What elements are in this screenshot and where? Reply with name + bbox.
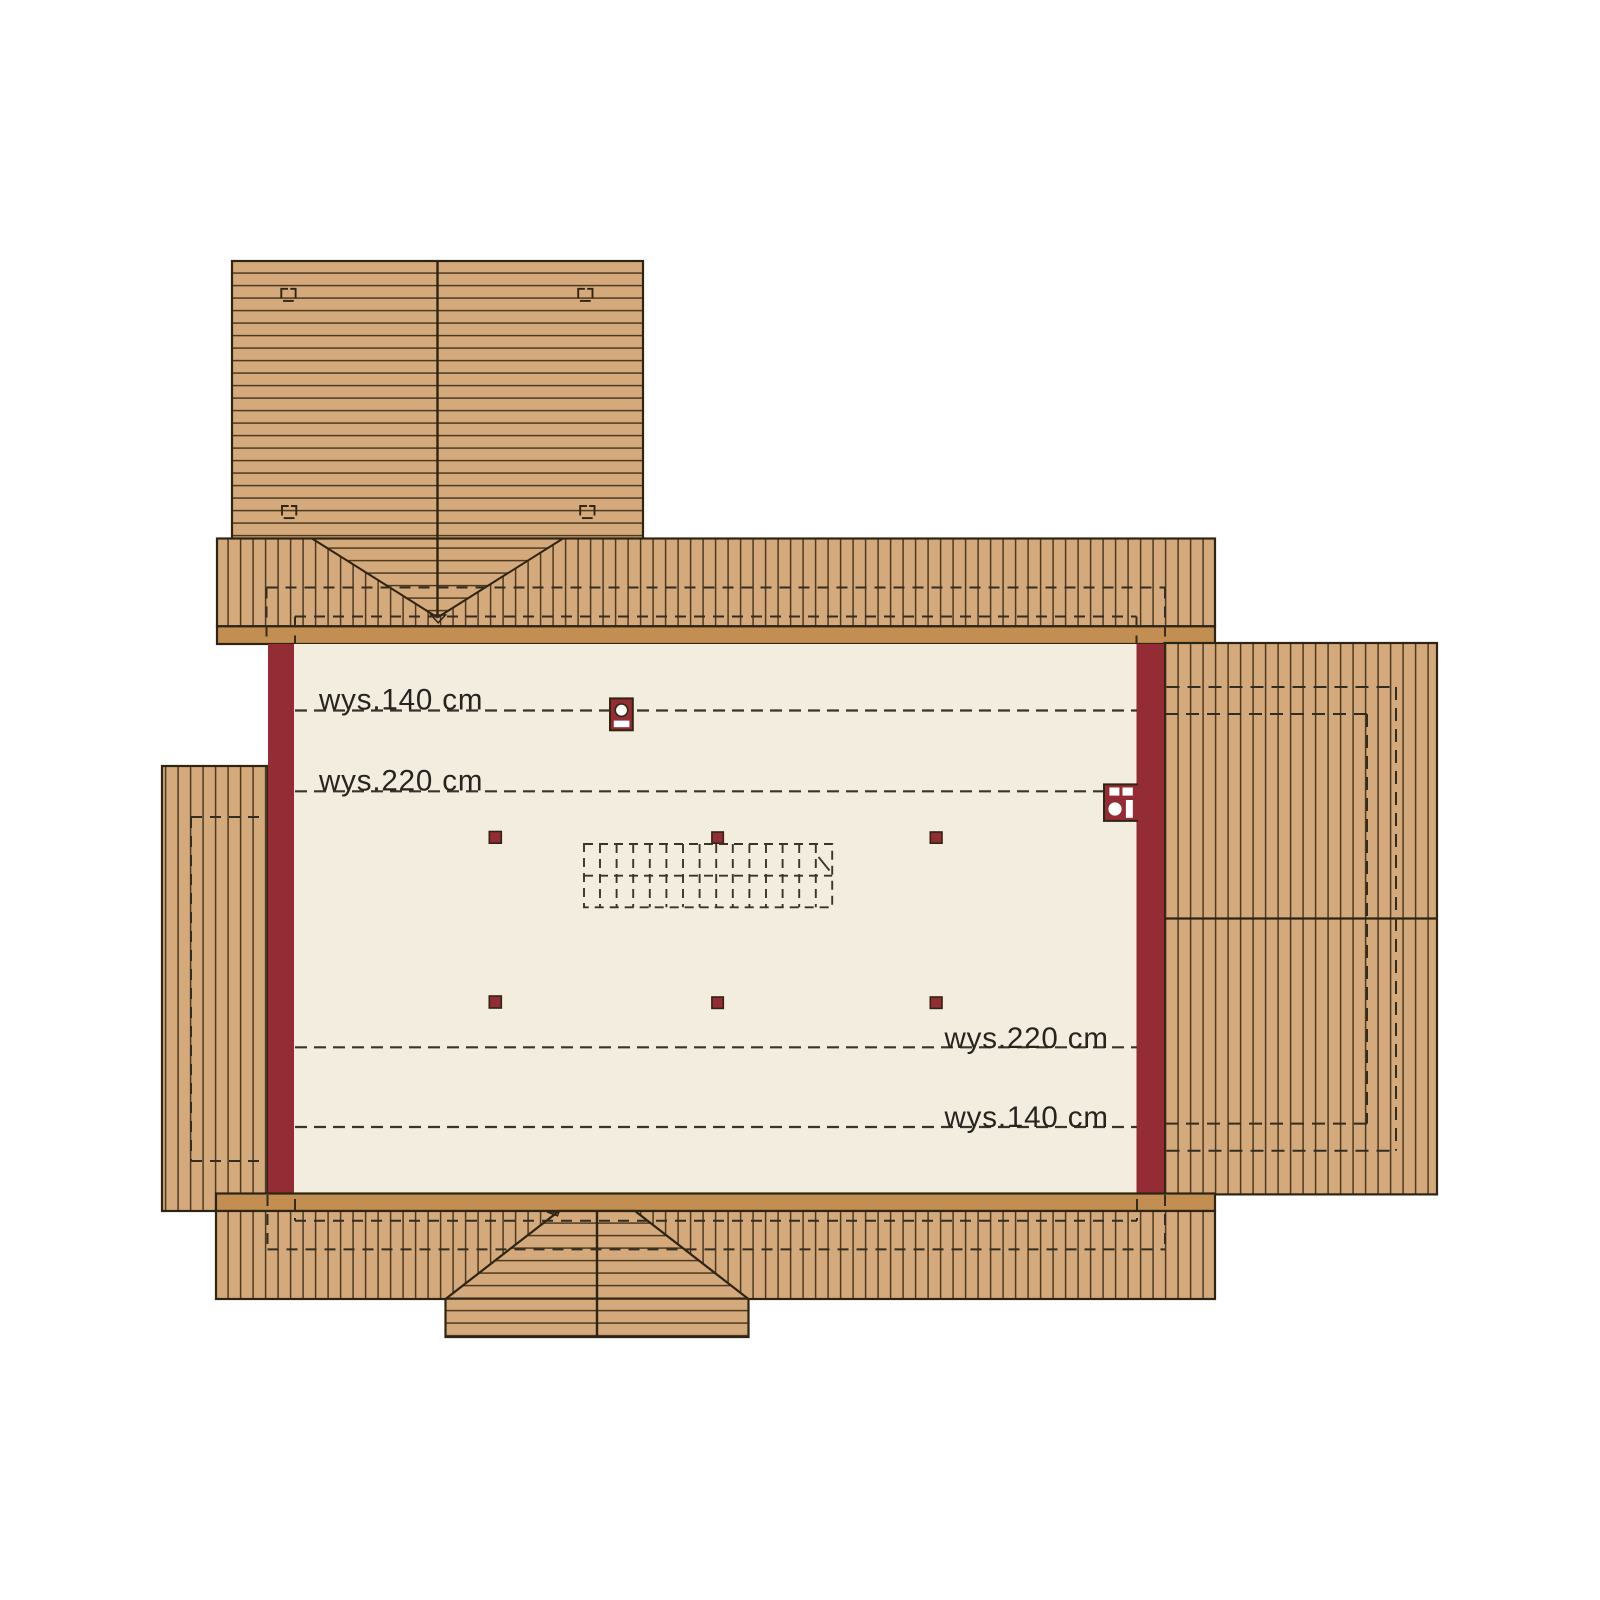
svg-text:wys.220 cm: wys.220 cm (944, 1022, 1109, 1055)
svg-text:wys.140 cm: wys.140 cm (944, 1101, 1109, 1134)
svg-text:wys.140 cm: wys.140 cm (318, 684, 483, 717)
svg-text:wys.220 cm: wys.220 cm (318, 765, 483, 798)
